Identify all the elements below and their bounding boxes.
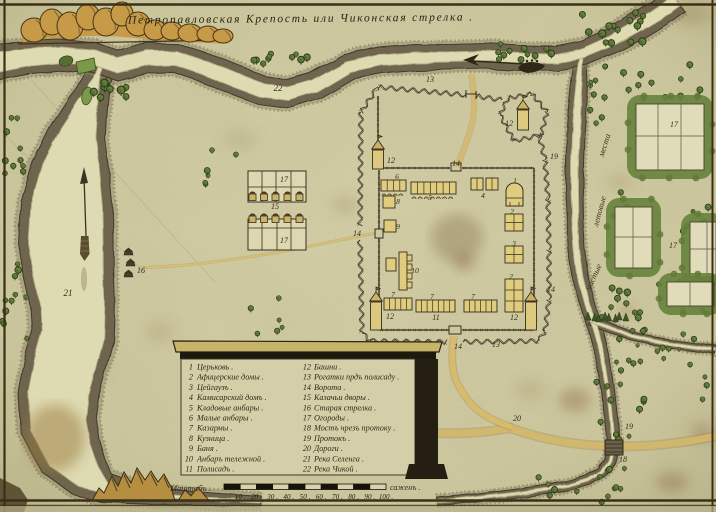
svg-text:13: 13 — [426, 75, 434, 84]
svg-text:Протокъ .: Протокъ . — [313, 434, 350, 443]
svg-text:16: 16 — [137, 266, 145, 275]
svg-text:5: 5 — [189, 403, 193, 412]
svg-text:Река Чикой .: Река Чикой . — [313, 465, 358, 474]
svg-text:16: 16 — [303, 403, 312, 412]
svg-text:Цейгаузъ .: Цейгаузъ . — [196, 383, 233, 392]
svg-text:4: 4 — [481, 191, 485, 200]
svg-text:Церьковь .: Церьковь . — [196, 363, 233, 372]
svg-text:Старая стрелка .: Старая стрелка . — [314, 403, 376, 412]
svg-text:15: 15 — [303, 393, 311, 402]
svg-text:7: 7 — [471, 292, 475, 301]
svg-text:12: 12 — [510, 313, 518, 322]
svg-text:17: 17 — [303, 414, 312, 423]
svg-text:17: 17 — [670, 120, 679, 129]
svg-text:14: 14 — [452, 159, 460, 168]
svg-text:Мостъ чрезъ протоку .: Мостъ чрезъ протоку . — [313, 424, 395, 433]
svg-text:20: 20 — [303, 444, 311, 453]
svg-text:12: 12 — [303, 363, 311, 372]
svg-text:Река Селенга .: Река Селенга . — [313, 454, 364, 463]
svg-text:10: 10 — [185, 454, 193, 463]
svg-text:12: 12 — [386, 312, 394, 321]
svg-text:9: 9 — [396, 222, 400, 231]
svg-text:2: 2 — [510, 207, 514, 216]
svg-text:4: 4 — [189, 393, 193, 402]
svg-text:Казармы .: Казармы . — [196, 424, 232, 433]
svg-text:5: 5 — [428, 193, 432, 202]
svg-text:1: 1 — [513, 176, 517, 185]
svg-text:Огороды .: Огороды . — [314, 414, 349, 423]
svg-text:7: 7 — [430, 292, 434, 301]
svg-text:2: 2 — [189, 373, 193, 382]
svg-text:15: 15 — [271, 202, 279, 211]
svg-text:Баня .: Баня . — [196, 444, 218, 453]
svg-text:8: 8 — [189, 434, 193, 443]
svg-text:14: 14 — [353, 229, 361, 238]
svg-text:14: 14 — [454, 342, 462, 351]
svg-text:12: 12 — [387, 156, 395, 165]
svg-text:19: 19 — [303, 434, 311, 443]
svg-text:13: 13 — [492, 340, 500, 349]
svg-text:17: 17 — [280, 236, 289, 245]
svg-text:8: 8 — [396, 197, 400, 206]
svg-text:Афицерские домы .: Афицерские домы . — [196, 373, 264, 382]
svg-text:9: 9 — [189, 444, 193, 453]
svg-text:3: 3 — [188, 383, 193, 392]
svg-text:7: 7 — [391, 290, 395, 299]
svg-text:20: 20 — [513, 414, 521, 423]
svg-text:18: 18 — [619, 455, 627, 464]
svg-text:Ворота .: Ворота . — [314, 383, 345, 392]
svg-text:11: 11 — [185, 465, 193, 474]
svg-text:1: 1 — [189, 363, 193, 372]
svg-text:11: 11 — [432, 313, 439, 322]
svg-text:Кладовые анбары .: Кладовые анбары . — [196, 403, 263, 412]
svg-text:22: 22 — [274, 83, 284, 93]
svg-text:17: 17 — [669, 241, 678, 250]
svg-text:14: 14 — [547, 285, 555, 294]
svg-text:Малые анбары .: Малые анбары . — [196, 414, 253, 423]
svg-text:19: 19 — [550, 152, 558, 161]
svg-text:саженъ .: саженъ . — [390, 483, 420, 492]
svg-text:21: 21 — [303, 454, 311, 463]
svg-text:3: 3 — [511, 239, 516, 248]
svg-text:17: 17 — [280, 175, 289, 184]
svg-text:13: 13 — [303, 373, 311, 382]
svg-text:Рогатки прдъ полисаду .: Рогатки прдъ полисаду . — [313, 373, 399, 382]
svg-text:18: 18 — [303, 424, 311, 433]
svg-text:Казачьи дворы .: Казачьи дворы . — [313, 393, 370, 402]
svg-text:Кузница .: Кузница . — [196, 434, 229, 443]
svg-text:19: 19 — [625, 422, 633, 431]
svg-text:6: 6 — [395, 172, 399, 181]
svg-text:Маштабъ .: Маштабъ . — [169, 483, 211, 493]
svg-text:Дороги .: Дороги . — [313, 444, 343, 453]
svg-text:14: 14 — [303, 383, 311, 392]
svg-text:12: 12 — [505, 119, 513, 128]
svg-text:2: 2 — [509, 272, 513, 281]
svg-text:Полисадъ .: Полисадъ . — [196, 465, 234, 474]
svg-text:Камисарский домъ .: Камисарский домъ . — [196, 393, 267, 402]
svg-text:22: 22 — [303, 465, 311, 474]
svg-text:Башни .: Башни . — [313, 363, 341, 372]
svg-text:Анбаръ тележной .: Анбаръ тележной . — [196, 454, 265, 463]
svg-text:21: 21 — [64, 288, 73, 298]
svg-text:10: 10 — [411, 266, 419, 275]
